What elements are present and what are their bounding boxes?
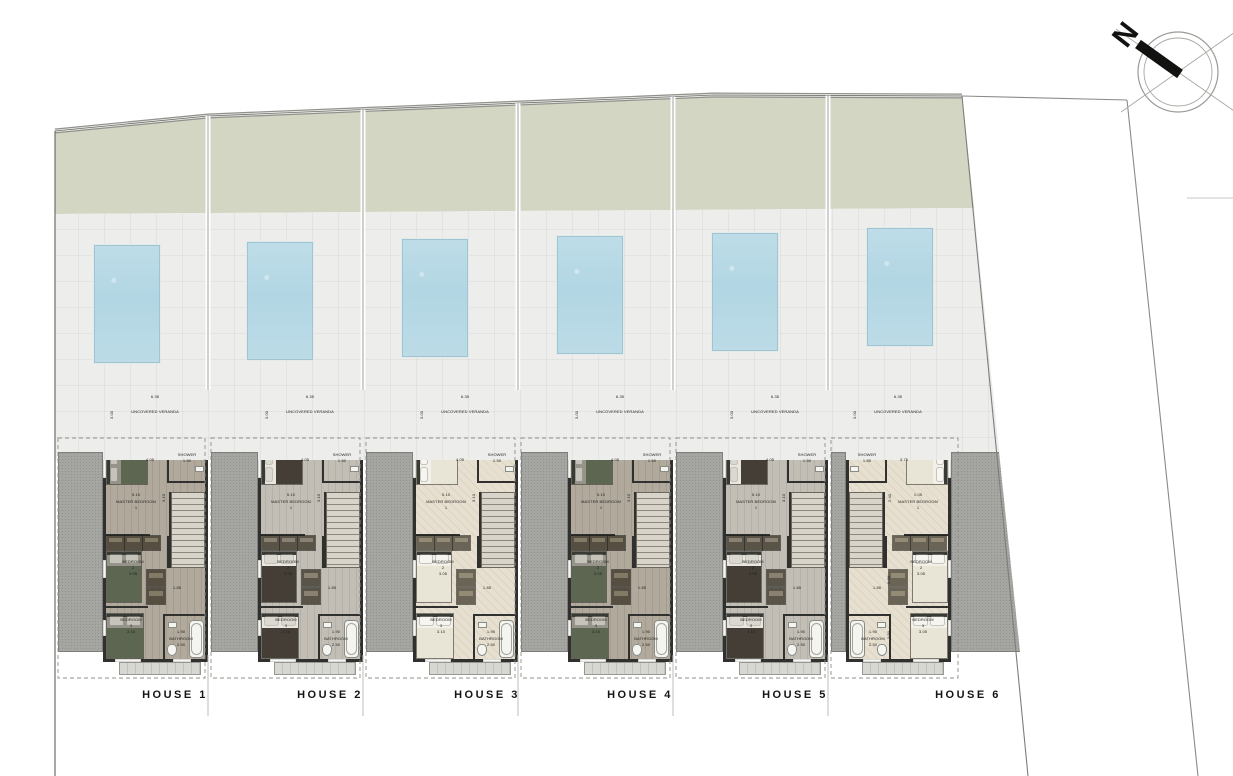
- bathroom-dim-a: 1.90: [177, 630, 185, 634]
- master-bedroom-number: 1: [445, 506, 447, 510]
- plot-dashed-6: [831, 438, 958, 678]
- bedroom3-dim: 3.10: [282, 630, 290, 634]
- bedroom2-dim: 3.05: [917, 572, 925, 576]
- shower-dim: 1.50: [648, 459, 656, 463]
- bedroom2-dim-side: 3.30: [887, 576, 891, 584]
- site-right-boundary: [1127, 100, 1198, 776]
- bathroom-label: BATHROOM: [789, 637, 813, 641]
- bedroom2-dim: 3.05: [594, 572, 602, 576]
- master-bedroom-label: MASTER BEDROOM: [116, 500, 156, 504]
- bedroom3-label: BEDROOM: [275, 618, 296, 622]
- bathroom-dim-b: 2.50: [642, 643, 650, 647]
- bedroom3-label: BEDROOM: [740, 618, 761, 622]
- veranda-width-dim: 6.35: [771, 395, 779, 399]
- bedroom3-dim: 3.10: [592, 630, 600, 634]
- shower-dim: 1.50: [493, 459, 501, 463]
- shower-dim: 1.50: [338, 459, 346, 463]
- hall-dim: 1.85: [483, 586, 491, 590]
- bathroom-dim-b: 2.50: [869, 643, 877, 647]
- bedroom2-dim: 3.05: [439, 572, 447, 576]
- bedroom3-label: BEDROOM: [430, 618, 451, 622]
- bathroom-label: BATHROOM: [861, 637, 885, 641]
- master-dim-side: 2.40: [888, 494, 892, 502]
- master-dim-a: 4.05: [766, 458, 774, 462]
- hall-dim: 1.85: [328, 586, 336, 590]
- bedroom2-dim: 3.05: [749, 572, 757, 576]
- bedroom3-dim: 3.10: [437, 630, 445, 634]
- plot-dividers: [208, 95, 828, 716]
- bedroom2-label: BEDROOM: [277, 560, 298, 564]
- veranda-label: UNCOVERED VERANDA: [441, 410, 489, 414]
- bathroom-dim-b: 2.50: [797, 643, 805, 647]
- master-bedroom-number: 1: [290, 506, 292, 510]
- bedroom3-number: 3: [130, 624, 132, 628]
- bathroom-dim-a: 1.90: [642, 630, 650, 634]
- bathroom-label: BATHROOM: [479, 637, 503, 641]
- hall-dim: 1.85: [638, 586, 646, 590]
- master-dim-side: 3.10: [627, 494, 631, 502]
- master-dim-b: 5.10: [287, 493, 295, 497]
- veranda-depth-dim: 3.00: [420, 411, 424, 419]
- master-dim-side: 3.10: [472, 494, 476, 502]
- master-dim-a: 4.05: [301, 458, 309, 462]
- bedroom2-label: BEDROOM: [910, 560, 931, 564]
- master-bedroom-label: MASTER BEDROOM: [581, 500, 621, 504]
- master-dim-b: 5.10: [597, 493, 605, 497]
- master-dim-side: 3.10: [162, 494, 166, 502]
- master-dim-b: 5.10: [442, 493, 450, 497]
- master-bedroom-label: MASTER BEDROOM: [736, 500, 776, 504]
- master-dim-a: 4.05: [456, 458, 464, 462]
- master-dim-b: 1.05: [914, 493, 922, 497]
- bedroom2-label: BEDROOM: [122, 560, 143, 564]
- veranda-depth-dim: 3.00: [265, 411, 269, 419]
- plot6-diagonal-boundary: [962, 96, 1028, 776]
- bedroom3-number: 3: [440, 624, 442, 628]
- veranda-label: UNCOVERED VERANDA: [874, 410, 922, 414]
- bathroom-dim-a: 1.90: [869, 630, 877, 634]
- site-lines: N: [0, 0, 1233, 776]
- veranda-depth-dim: 3.00: [110, 411, 114, 419]
- bedroom2-dim: 3.05: [284, 572, 292, 576]
- bedroom3-dim: 3.10: [747, 630, 755, 634]
- master-dim-b: 5.10: [132, 493, 140, 497]
- veranda-label: UNCOVERED VERANDA: [131, 410, 179, 414]
- bathroom-dim-b: 2.50: [487, 643, 495, 647]
- shower-label: SHOWER: [798, 453, 817, 457]
- house-label-2: HOUSE 2: [297, 689, 363, 701]
- veranda-depth-dim: 3.00: [853, 411, 857, 419]
- master-bedroom-number: 1: [755, 506, 757, 510]
- bathroom-dim-a: 1.90: [487, 630, 495, 634]
- veranda-width-dim: 6.35: [461, 395, 469, 399]
- veranda-label: UNCOVERED VERANDA: [286, 410, 334, 414]
- shower-label: SHOWER: [178, 453, 197, 457]
- bedroom2-number: 2: [442, 566, 444, 570]
- site-plan-page: { "north_label": "N", "veranda_label": "…: [0, 0, 1233, 776]
- bedroom3-label: BEDROOM: [120, 618, 141, 622]
- bedroom2-label: BEDROOM: [587, 560, 608, 564]
- veranda-label: UNCOVERED VERANDA: [596, 410, 644, 414]
- bathroom-dim-b: 2.50: [332, 643, 340, 647]
- house-label-3: HOUSE 3: [454, 689, 520, 701]
- master-bedroom-number: 1: [135, 506, 137, 510]
- shower-label: SHOWER: [488, 453, 507, 457]
- shower-label: SHOWER: [643, 453, 662, 457]
- bedroom3-label: BEDROOM: [585, 618, 606, 622]
- veranda-width-dim: 6.35: [151, 395, 159, 399]
- master-dim-b: 5.10: [752, 493, 760, 497]
- bedroom2-number: 2: [287, 566, 289, 570]
- master-bedroom-number: 1: [917, 506, 919, 510]
- house-label-5: HOUSE 5: [762, 689, 828, 701]
- bedroom2-label: BEDROOM: [432, 560, 453, 564]
- bathroom-dim-b: 2.50: [177, 643, 185, 647]
- house-label-4: HOUSE 4: [607, 689, 673, 701]
- bedroom2-number: 2: [920, 566, 922, 570]
- bathroom-dim-a: 1.90: [797, 630, 805, 634]
- bathroom-label: BATHROOM: [324, 637, 348, 641]
- shower-dim: 1.85: [863, 459, 871, 463]
- veranda-depth-dim: 3.00: [730, 411, 734, 419]
- bedroom2-number: 2: [752, 566, 754, 570]
- bedroom3-dim: 3.10: [127, 630, 135, 634]
- hall-dim: 1.85: [793, 586, 801, 590]
- master-dim-a: 4.05: [146, 458, 154, 462]
- master-dim-side: 3.10: [317, 494, 321, 502]
- veranda-depth-dim: 3.00: [575, 411, 579, 419]
- bathroom-label: BATHROOM: [634, 637, 658, 641]
- master-dim-a: 3.75: [900, 458, 908, 462]
- master-bedroom-label: MASTER BEDROOM: [898, 500, 938, 504]
- plot-dashed-boundaries: [58, 438, 958, 678]
- bedroom3-label: BEDROOM: [912, 618, 933, 622]
- shower-label: SHOWER: [333, 453, 352, 457]
- master-dim-side: 3.10: [782, 494, 786, 502]
- bedroom3-number: 3: [285, 624, 287, 628]
- bathroom-dim-a: 1.90: [332, 630, 340, 634]
- shower-dim: 1.50: [803, 459, 811, 463]
- bedroom2-label: BEDROOM: [742, 560, 763, 564]
- hall-dim: 1.85: [873, 586, 881, 590]
- veranda-label: UNCOVERED VERANDA: [751, 410, 799, 414]
- bathroom-label: BATHROOM: [169, 637, 193, 641]
- bedroom2-number: 2: [597, 566, 599, 570]
- master-bedroom-number: 1: [600, 506, 602, 510]
- bedroom2-number: 2: [132, 566, 134, 570]
- house-label-1: HOUSE 1: [142, 689, 208, 701]
- veranda-width-dim: 6.35: [894, 395, 902, 399]
- hall-dim: 1.85: [173, 586, 181, 590]
- site-top-boundary-ext: [962, 96, 1127, 100]
- bedroom3-number: 3: [750, 624, 752, 628]
- veranda-width-dim: 6.35: [616, 395, 624, 399]
- master-bedroom-label: MASTER BEDROOM: [271, 500, 311, 504]
- bedroom3-dim-side: 3.90: [887, 631, 891, 639]
- master-bedroom-label: MASTER BEDROOM: [426, 500, 466, 504]
- bedroom3-number: 3: [922, 624, 924, 628]
- shower-label: SHOWER: [858, 453, 877, 457]
- house-label-6: HOUSE 6: [935, 689, 1001, 701]
- bedroom3-number: 3: [595, 624, 597, 628]
- veranda-width-dim: 6.35: [306, 395, 314, 399]
- shower-dim: 1.50: [183, 459, 191, 463]
- master-dim-a: 4.05: [611, 458, 619, 462]
- bedroom3-dim: 3.05: [919, 630, 927, 634]
- bedroom2-dim: 3.05: [129, 572, 137, 576]
